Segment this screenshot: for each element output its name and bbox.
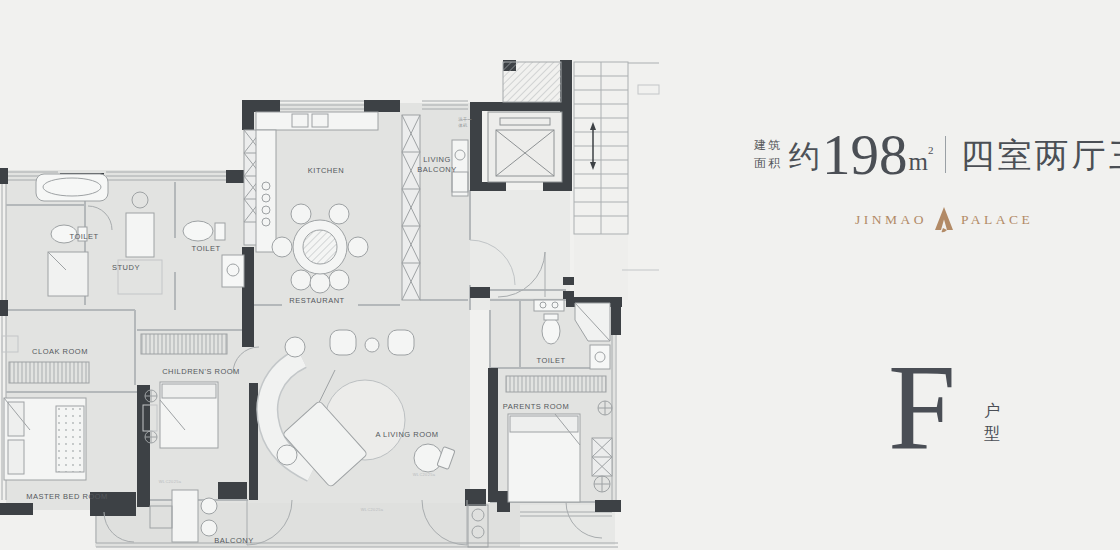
room-label-toilet-right: TOILET xyxy=(536,356,565,366)
dimension-mark-2: WLC2025a xyxy=(361,507,383,512)
area-prefix: 建筑 面积 xyxy=(754,136,782,172)
floor-plan xyxy=(0,0,660,550)
area-unit: m xyxy=(909,148,928,176)
room-label-toilet-left: TOILET xyxy=(69,232,98,242)
floorplan-page: TOILET STUDY TOILET KITCHEN LIVINGBALCON… xyxy=(0,0,1120,550)
area-number: 198 xyxy=(822,132,908,178)
room-label-children-room: CHILDREN'S ROOM xyxy=(162,367,240,377)
room-label-toilet-mid: TOILET xyxy=(191,244,220,254)
brand-logo: JINMAO PALACE xyxy=(855,206,1033,233)
room-label-living-room: A LIVING ROOM xyxy=(375,430,438,440)
room-label-balcony: BALCONY xyxy=(214,536,253,546)
room-label-cloak-room: CLOAK ROOM xyxy=(32,347,88,357)
washer-dryer-label: 洗干一体机 xyxy=(458,117,472,128)
dimension-mark-3: WLC2025a xyxy=(159,479,181,484)
room-label-master-bedroom: MASTER BED ROOM xyxy=(26,492,108,502)
room-label-parents-room: PARENTS ROOM xyxy=(503,402,569,412)
living-balcony-line2: BALCONY xyxy=(417,165,456,174)
room-label-study: STUDY xyxy=(112,263,140,273)
brand-name-left: JINMAO xyxy=(855,212,927,228)
living-balcony-line1: LIVING xyxy=(423,155,451,164)
area-prefix-line2: 面积 xyxy=(754,154,782,172)
elevator xyxy=(488,112,562,182)
dimension-mark-1: WLC2025a xyxy=(413,472,435,477)
unit-type-char1: 户 xyxy=(984,403,1000,419)
room-label-living-balcony: LIVINGBALCONY xyxy=(417,155,456,175)
washer-label-line1: 洗干一 xyxy=(458,117,472,122)
children-room-furniture xyxy=(141,334,227,448)
washer-label-line2: 体机 xyxy=(458,122,467,127)
unit-type-label: 户 型 xyxy=(984,403,1000,442)
unit-type-char2: 型 xyxy=(984,426,1000,442)
unit-letter: F xyxy=(888,352,956,462)
area-prefix-line1: 建筑 xyxy=(754,136,782,154)
area-approx: 约 xyxy=(789,136,820,178)
brand-name-right: PALACE xyxy=(961,212,1033,228)
area-unit-superscript: 2 xyxy=(928,144,934,156)
layout-type: 四室两厅三卫 xyxy=(960,133,1120,179)
jinmao-triangle-icon xyxy=(934,206,954,233)
area-spec-block: 建筑 面积 约 198 m 2 四室两厅三卫 xyxy=(754,130,1120,179)
room-label-restaurant: RESTAURANT xyxy=(289,296,344,306)
room-label-kitchen: KITCHEN xyxy=(308,166,344,176)
spec-divider xyxy=(945,136,946,173)
lobby-hatch xyxy=(503,62,561,102)
